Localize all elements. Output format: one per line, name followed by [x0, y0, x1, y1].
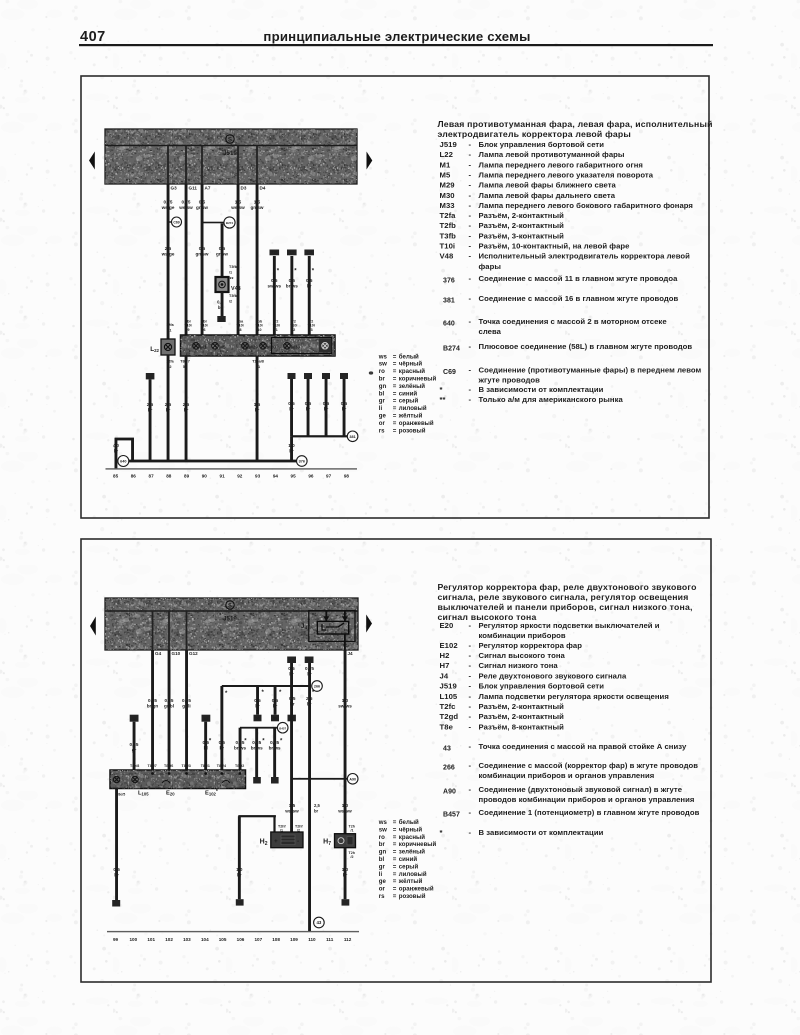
svg-text:Лампа переднего левого габарит: Лампа переднего левого габаритного огня — [479, 160, 643, 169]
svg-text:M5: M5 — [219, 345, 226, 350]
svg-text:br: br — [290, 701, 295, 706]
svg-text:br: br — [343, 872, 348, 877]
svg-text:-: - — [469, 785, 472, 794]
svg-text:2,5: 2,5 — [314, 803, 320, 808]
svg-text:1,5: 1,5 — [235, 200, 242, 205]
svg-text:J4: J4 — [440, 672, 449, 681]
svg-text:T3fb: T3fb — [229, 294, 238, 298]
svg-text:T8e/2: T8e/2 — [235, 764, 244, 768]
svg-text:Лампа подсветки регулятора ярк: Лампа подсветки регулятора яркости освещ… — [479, 692, 669, 701]
svg-text:0,35: 0,35 — [252, 740, 261, 745]
svg-text:br/ws: br/ws — [251, 745, 263, 750]
svg-text:=: = — [393, 878, 397, 885]
svg-text:0,75: 0,75 — [164, 200, 173, 205]
svg-text:-: - — [469, 742, 472, 751]
svg-text:T2f: T2f — [272, 251, 277, 255]
svg-text:T2fb: T2fb — [440, 221, 457, 230]
svg-text:Соединение с массой 11 в главн: Соединение с массой 11 в главном жгуте п… — [479, 274, 679, 283]
svg-text:109: 109 — [290, 937, 298, 942]
svg-text:2,5: 2,5 — [306, 696, 313, 701]
svg-text:-: - — [469, 651, 472, 660]
svg-text:-: - — [469, 692, 472, 701]
svg-text:br/ws: br/ws — [234, 745, 246, 750]
svg-text:106: 106 — [237, 937, 245, 942]
svg-text:=: = — [393, 390, 397, 397]
svg-text:-: - — [469, 712, 472, 721]
svg-text:98: 98 — [344, 474, 350, 479]
svg-text:G12: G12 — [189, 651, 198, 656]
svg-text:Левая противотуманная фара, ле: Левая противотуманная фара, левая фара, … — [438, 119, 713, 129]
svg-text:=: = — [393, 819, 397, 826]
svg-text:M29: M29 — [440, 181, 455, 190]
svg-text:0,5: 0,5 — [217, 300, 223, 305]
svg-text:2,5: 2,5 — [183, 402, 190, 407]
svg-text:94: 94 — [273, 474, 279, 479]
svg-text:T8e/6: T8e/6 — [164, 764, 173, 768]
svg-text:gr/bl: gr/bl — [164, 703, 174, 708]
svg-text:br: br — [114, 872, 119, 877]
svg-text:G3: G3 — [171, 186, 178, 191]
svg-text:T2fc: T2fc — [440, 702, 457, 711]
svg-text:L105: L105 — [440, 692, 458, 701]
svg-text:H2: H2 — [440, 651, 450, 660]
svg-text:Соединение с массой (корректор: Соединение с массой (корректор фар) в жг… — [479, 761, 699, 770]
svg-text:принципиальные электрические с: принципиальные электрические схемы — [263, 29, 530, 44]
svg-text:Разъём, 3-контактный: Разъём, 3-контактный — [479, 231, 565, 240]
svg-text:Блок управления бортовой сети: Блок управления бортовой сети — [479, 140, 605, 149]
svg-text:376: 376 — [219, 317, 225, 321]
svg-text:96: 96 — [308, 474, 314, 479]
svg-text:ws/ge: ws/ge — [161, 251, 175, 256]
svg-text:S: S — [228, 137, 232, 143]
svg-text:-: - — [469, 672, 472, 681]
svg-text:0,5: 0,5 — [219, 740, 226, 745]
svg-text:0,5: 0,5 — [254, 698, 261, 703]
svg-text:sw/ws: sw/ws — [338, 703, 352, 708]
svg-text:чёрный: чёрный — [399, 361, 423, 368]
svg-text:=: = — [393, 413, 397, 420]
svg-text:br: br — [306, 406, 311, 411]
svg-text:99: 99 — [113, 937, 119, 942]
svg-text:1,0: 1,0 — [236, 867, 243, 872]
svg-text:56: 56 — [256, 717, 260, 721]
svg-text:T8e/4: T8e/4 — [217, 764, 226, 768]
svg-text:-: - — [469, 828, 472, 837]
svg-text:слева: слева — [479, 327, 502, 336]
svg-text:=: = — [393, 886, 397, 893]
svg-text:T2fa: T2fa — [440, 211, 457, 220]
svg-text:жёлтый: жёлтый — [398, 878, 423, 885]
svg-text:-: - — [469, 385, 472, 394]
svg-text:комбинации приборов: комбинации приборов — [479, 631, 566, 640]
svg-text:1,5: 1,5 — [254, 200, 261, 205]
svg-text:li: li — [379, 405, 383, 412]
svg-text:Лампа переднего левого боковог: Лампа переднего левого бокового габаритн… — [479, 201, 693, 210]
svg-text:L105: L105 — [138, 791, 149, 797]
svg-text:J519: J519 — [223, 150, 237, 157]
svg-text:-: - — [469, 181, 472, 190]
svg-text:T2: T2 — [307, 658, 311, 662]
svg-text:G11: G11 — [189, 186, 198, 191]
svg-text:-: - — [469, 641, 472, 650]
svg-text:0,5: 0,5 — [271, 278, 278, 283]
svg-text:+: + — [274, 838, 278, 845]
svg-text:M30: M30 — [440, 191, 455, 200]
svg-text:gn/sw: gn/sw — [250, 205, 263, 210]
svg-text:Лампа переднего левого указате: Лампа переднего левого указателя поворот… — [479, 171, 654, 180]
svg-text:/2: /2 — [292, 328, 295, 332]
svg-text:ge: ge — [379, 413, 387, 420]
svg-text:br: br — [114, 448, 119, 453]
svg-text:gr/li: gr/li — [182, 703, 190, 708]
svg-text:коричневый: коричневый — [399, 841, 437, 848]
svg-text:Соединение с массой 16 в главн: Соединение с массой 16 в главном жгуте п… — [479, 294, 679, 303]
svg-text:1,0: 1,0 — [342, 867, 349, 872]
svg-text:/10: /10 — [257, 328, 262, 332]
svg-text:В зависимости от комплектации: В зависимости от комплектации — [479, 828, 604, 837]
svg-text:=: = — [393, 427, 397, 434]
svg-text:=: = — [393, 420, 397, 427]
svg-text:T8e/7: T8e/7 — [148, 764, 157, 768]
svg-text:gn: gn — [379, 849, 387, 856]
svg-text:лиловый: лиловый — [399, 405, 427, 412]
svg-text:0,5: 0,5 — [289, 696, 296, 701]
svg-text:J519: J519 — [223, 616, 237, 623]
svg-text:выключателей и панели приборов: выключателей и панели приборов, сигнал н… — [438, 602, 693, 612]
svg-text:D4: D4 — [260, 186, 266, 191]
svg-text:-: - — [469, 661, 472, 670]
svg-text:105: 105 — [219, 937, 227, 942]
svg-text:M33: M33 — [291, 345, 300, 350]
svg-text:/1: /1 — [229, 270, 232, 274]
svg-text:br: br — [379, 376, 386, 383]
svg-text:0,5: 0,5 — [199, 200, 206, 205]
svg-text:-: - — [469, 395, 472, 404]
svg-text:br/ws: br/ws — [269, 745, 281, 750]
svg-text:A7: A7 — [205, 186, 211, 191]
svg-text:87: 87 — [149, 474, 155, 479]
svg-text:br: br — [273, 703, 278, 708]
svg-text:89: 89 — [184, 474, 190, 479]
svg-text:br: br — [324, 406, 329, 411]
svg-text:T8e/1: T8e/1 — [201, 764, 210, 768]
svg-text:Точка соединения с массой 2 в: Точка соединения с массой 2 в моторном о… — [479, 317, 668, 326]
svg-text:-: - — [469, 682, 472, 691]
svg-text:-: - — [469, 294, 472, 303]
svg-text:407: 407 — [80, 29, 106, 45]
svg-text:640: 640 — [120, 460, 126, 464]
svg-text:Разъём, 2-контактный: Разъём, 2-контактный — [479, 211, 565, 220]
svg-text:0,75: 0,75 — [305, 666, 314, 671]
svg-text:Регулятор корректора фар, реле: Регулятор корректора фар, реле двухтонов… — [438, 582, 697, 592]
svg-text:Разъём, 8-контактный: Разъём, 8-контактный — [479, 723, 565, 732]
svg-text:J519: J519 — [440, 682, 457, 691]
svg-text:br: br — [148, 407, 153, 412]
svg-text:or: or — [379, 420, 386, 427]
svg-text:=: = — [393, 398, 397, 405]
svg-text:лиловый: лиловый — [399, 871, 427, 878]
svg-text:/2: /2 — [229, 299, 232, 303]
svg-text:-: - — [469, 621, 472, 630]
svg-text:Реле двухтонового звукового си: Реле двухтонового звукового сигнала — [479, 672, 627, 681]
svg-text:br: br — [184, 407, 189, 412]
svg-text:фары: фары — [479, 262, 502, 271]
svg-text:43: 43 — [316, 920, 321, 925]
svg-text:T2f: T2f — [307, 251, 312, 255]
svg-text:T10i: T10i — [440, 242, 456, 251]
svg-text:Исполнительный электродвигател: Исполнительный электродвигатель корректо… — [479, 252, 691, 261]
svg-text:br: br — [289, 448, 294, 453]
svg-text:E20: E20 — [440, 621, 454, 630]
svg-text:=: = — [393, 871, 397, 878]
svg-text:E102: E102 — [440, 641, 458, 650]
svg-text:T8e/3: T8e/3 — [182, 764, 191, 768]
svg-text:=: = — [393, 849, 397, 856]
svg-text:-: - — [469, 221, 472, 230]
svg-text:белый: белый — [399, 819, 419, 826]
svg-text:br: br — [289, 406, 294, 411]
svg-text:rs: rs — [379, 893, 385, 900]
svg-text:br: br — [220, 745, 225, 750]
svg-text:=: = — [393, 893, 397, 900]
svg-text:ws/sw: ws/sw — [284, 808, 299, 813]
svg-text:Соединение 1 (потенциометр) в: Соединение 1 (потенциометр) в главном жг… — [479, 808, 700, 817]
svg-text:bl: bl — [379, 390, 385, 397]
svg-text:ws/sw: ws/sw — [178, 205, 193, 210]
svg-text:Лампа левой фары ближнего свет: Лампа левой фары ближнего света — [479, 181, 617, 190]
svg-text:85: 85 — [113, 474, 119, 479]
svg-text:V48: V48 — [440, 252, 455, 261]
svg-text:1,0: 1,0 — [288, 443, 295, 448]
svg-text:376: 376 — [299, 460, 305, 464]
svg-text:ws: ws — [378, 353, 388, 360]
svg-text:0,35: 0,35 — [130, 742, 139, 747]
svg-text:0,5: 0,5 — [219, 246, 226, 251]
svg-text:-: - — [297, 838, 299, 845]
svg-text:T3fb: T3fb — [440, 231, 457, 240]
svg-text:112: 112 — [344, 937, 352, 942]
svg-text:0,35: 0,35 — [165, 698, 174, 703]
svg-text:M1: M1 — [440, 160, 451, 169]
svg-text:B274: B274 — [443, 346, 460, 353]
svg-text:Точка соединения с массой на п: Точка соединения с массой на правой стой… — [479, 742, 687, 751]
svg-text:0,5: 0,5 — [306, 278, 313, 283]
svg-text:bl: bl — [379, 856, 385, 863]
svg-text:0,5: 0,5 — [288, 401, 295, 406]
svg-text:оранжевый: оранжевый — [399, 886, 434, 893]
svg-text:T2: T2 — [289, 658, 293, 662]
svg-text:В зависимости от комплектации: В зависимости от комплектации — [479, 385, 604, 394]
svg-text:T2f: T2f — [289, 251, 294, 255]
svg-text:12fa: 12fa — [166, 323, 174, 327]
svg-text:красный: красный — [399, 368, 425, 375]
svg-text:Разъём, 2-контактный: Разъём, 2-контактный — [479, 702, 565, 711]
svg-text:376: 376 — [443, 278, 455, 285]
svg-text:Регулятор яркости подсветки вы: Регулятор яркости подсветки выключателей… — [479, 621, 660, 630]
svg-text:br: br — [307, 283, 312, 288]
svg-text:640: 640 — [443, 321, 455, 328]
svg-text:br/ws: br/ws — [286, 283, 298, 288]
svg-text:43: 43 — [443, 746, 451, 753]
svg-text:br: br — [166, 407, 171, 412]
svg-text:-: - — [469, 171, 472, 180]
svg-text:0,35: 0,35 — [148, 698, 157, 703]
svg-text:gn: gn — [379, 383, 387, 390]
svg-text:gr/sw: gr/sw — [216, 251, 228, 256]
svg-text:жёлтый: жёлтый — [398, 413, 423, 420]
svg-text:sw: sw — [379, 361, 387, 368]
svg-text:381: 381 — [349, 435, 355, 439]
svg-text:266: 266 — [443, 765, 455, 772]
svg-text:проводов комбинации приборов и: проводов комбинации приборов и органов у… — [479, 795, 695, 804]
svg-text:2,5: 2,5 — [165, 402, 172, 407]
svg-text:B457: B457 — [279, 726, 286, 730]
svg-text:B274: B274 — [226, 221, 234, 225]
svg-text:ws/sw: ws/sw — [230, 205, 245, 210]
svg-text:0,5: 0,5 — [199, 246, 206, 251]
svg-text:**: ** — [440, 395, 446, 404]
svg-text:gr: gr — [379, 398, 386, 405]
svg-text:0,35: 0,35 — [182, 698, 191, 703]
svg-text:серый: серый — [399, 398, 419, 405]
svg-text:86: 86 — [131, 474, 137, 479]
svg-text:Разъём, 10-контактный, на лево: Разъём, 10-контактный, на левой фаре — [479, 242, 631, 251]
svg-text:T8e: T8e — [440, 723, 454, 732]
svg-text:li: li — [379, 871, 383, 878]
svg-text:=: = — [393, 826, 397, 833]
svg-text:0,35: 0,35 — [270, 740, 279, 745]
svg-text:A90: A90 — [443, 789, 456, 796]
svg-text:Соединение (двухтоновый звуков: Соединение (двухтоновый звуковой сигнал)… — [479, 785, 683, 794]
svg-text:-: - — [469, 252, 472, 261]
svg-text:T8e/8: T8e/8 — [130, 764, 139, 768]
svg-text:красный: красный — [399, 834, 425, 841]
svg-text:56: 56 — [273, 717, 277, 721]
svg-text:Разъём, 2-контактный: Разъём, 2-контактный — [479, 221, 565, 230]
svg-text:-: - — [469, 150, 472, 159]
svg-text:синий: синий — [399, 856, 418, 863]
svg-text:=: = — [393, 368, 397, 375]
svg-text:ws/sw: ws/sw — [337, 808, 352, 813]
svg-text:коричневый: коричневый — [399, 376, 437, 383]
svg-text:br: br — [255, 703, 260, 708]
svg-text:T2gd: T2gd — [440, 712, 459, 721]
svg-text:A90: A90 — [349, 778, 356, 782]
svg-text:92: 92 — [237, 474, 243, 479]
svg-text:**: ** — [230, 277, 234, 283]
svg-text:4,0: 4,0 — [113, 443, 119, 448]
svg-text:*: * — [440, 385, 443, 394]
svg-text:розовый: розовый — [399, 893, 426, 900]
svg-text:gr/sw: gr/sw — [196, 205, 208, 210]
svg-text:=: = — [393, 863, 397, 870]
svg-text:0,5: 0,5 — [272, 698, 279, 703]
svg-text:1,0: 1,0 — [342, 803, 349, 808]
svg-text:bl: bl — [204, 745, 208, 750]
svg-text:B457: B457 — [443, 812, 460, 819]
svg-text:Блок управления бортовой сети: Блок управления бортовой сети — [479, 682, 605, 691]
svg-text:0,5: 0,5 — [113, 867, 120, 872]
svg-text:C69: C69 — [443, 369, 456, 376]
svg-text:Регулятор корректора фар: Регулятор корректора фар — [479, 641, 583, 650]
svg-text:*: * — [440, 828, 443, 837]
svg-text:-: - — [469, 342, 472, 351]
svg-text:Только а/м для американского р: Только а/м для американского рынка — [479, 395, 624, 404]
svg-text:Плюсовое соединение (58L) в гл: Плюсовое соединение (58L) в главном жгут… — [479, 342, 693, 351]
svg-text:/2: /2 — [351, 855, 354, 859]
svg-text:381: 381 — [443, 298, 455, 305]
svg-text:Сигнал высокого тона: Сигнал высокого тона — [479, 651, 566, 660]
svg-text:J519: J519 — [440, 140, 457, 149]
svg-text:br: br — [255, 407, 260, 412]
svg-text:J4: J4 — [348, 651, 354, 656]
svg-text:br: br — [342, 406, 347, 411]
svg-text:rs: rs — [379, 427, 385, 434]
svg-text:br: br — [307, 701, 312, 706]
svg-text:розовый: розовый — [399, 427, 426, 434]
svg-text:-: - — [469, 191, 472, 200]
svg-text:M33: M33 — [440, 201, 455, 210]
svg-text:100: 100 — [129, 937, 137, 942]
svg-text:зелёный: зелёный — [399, 383, 425, 390]
svg-text:синий: синий — [399, 390, 418, 397]
svg-text:0,5: 0,5 — [289, 278, 296, 283]
svg-text:электродвигатель корректора ле: электродвигатель корректора левой фары — [438, 129, 632, 139]
svg-text:91: 91 — [220, 474, 226, 479]
svg-text:жгуте проводов: жгуте проводов — [478, 376, 541, 385]
svg-text:-: - — [469, 702, 472, 711]
svg-text:M30: M30 — [267, 345, 276, 350]
svg-text:104: 104 — [201, 937, 209, 942]
svg-text:0,5: 0,5 — [305, 401, 312, 406]
svg-text:G4: G4 — [155, 651, 162, 656]
svg-text:-: - — [469, 723, 472, 732]
svg-text:93: 93 — [255, 474, 261, 479]
svg-text:Разъём, 2-контактный: Разъём, 2-контактный — [479, 712, 565, 721]
svg-text:=: = — [393, 841, 397, 848]
svg-text:-: - — [469, 317, 472, 326]
svg-text:ro: ro — [379, 368, 385, 375]
svg-text:G10: G10 — [172, 651, 181, 656]
svg-text:0,35: 0,35 — [236, 740, 245, 745]
svg-text:Сигнал низкого тона: Сигнал низкого тона — [479, 661, 559, 670]
svg-text:оранжевый: оранжевый — [399, 420, 434, 427]
svg-text:-: - — [469, 761, 472, 770]
svg-text:/3: /3 — [310, 328, 313, 332]
svg-text:/9: /9 — [187, 328, 190, 332]
svg-text:103: 103 — [183, 937, 191, 942]
svg-text:=: = — [393, 353, 397, 360]
svg-text:/1: /1 — [351, 829, 354, 833]
svg-text:V48: V48 — [231, 286, 241, 292]
svg-text:gr: gr — [379, 863, 386, 870]
svg-text:T2: T2 — [132, 717, 136, 721]
svg-text:1,0: 1,0 — [342, 698, 349, 703]
svg-text:br: br — [379, 841, 386, 848]
svg-text:0,75: 0,75 — [182, 200, 191, 205]
svg-text:or: or — [379, 886, 386, 893]
svg-text:D3: D3 — [241, 186, 247, 191]
svg-text:=: = — [393, 856, 397, 863]
svg-text:1,5: 1,5 — [289, 803, 296, 808]
svg-text:90: 90 — [202, 474, 208, 479]
svg-text:0,5: 0,5 — [288, 666, 295, 671]
svg-text:M5: M5 — [440, 171, 451, 180]
svg-text:2,5: 2,5 — [165, 246, 172, 251]
svg-text:чёрный: чёрный — [399, 826, 423, 833]
svg-text:br: br — [289, 671, 294, 676]
svg-text:белый: белый — [399, 353, 419, 360]
